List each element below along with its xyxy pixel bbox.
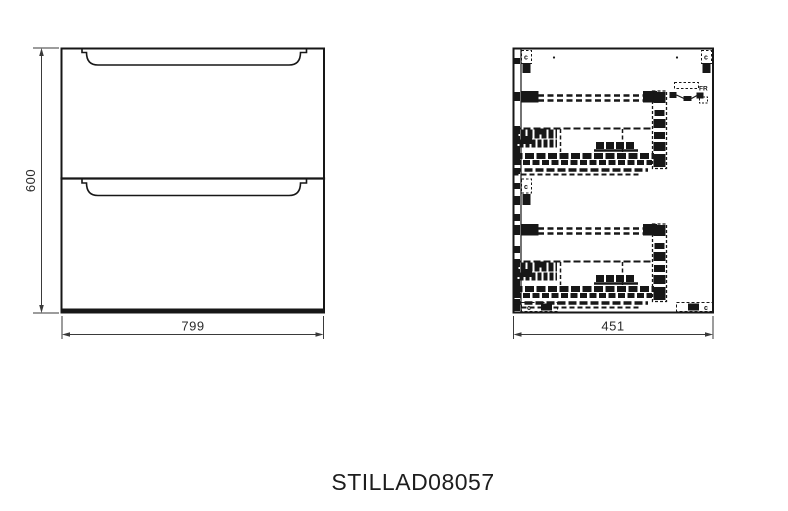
technical-drawing-page: 600 799 c <box>0 0 788 511</box>
depth-dimension-label: 451 <box>601 319 624 334</box>
bracket-mid-left: c <box>522 179 532 205</box>
arrow-down <box>39 305 44 313</box>
bracket-label: c <box>524 55 528 62</box>
arrow-right <box>316 332 324 337</box>
bracket-label: c <box>704 305 708 312</box>
product-code: STILLAD08057 <box>331 469 494 495</box>
corner-bracket-top-left: c <box>522 51 532 74</box>
bracket-label: c <box>524 184 528 191</box>
bracket-label: c <box>704 55 708 62</box>
bottom-drawer-handle-recess <box>82 180 307 196</box>
depth-dimension: 451 <box>514 316 714 339</box>
height-dimension-label: 600 <box>23 169 38 192</box>
arrow-up <box>39 48 44 56</box>
width-dimension: 799 <box>62 316 324 339</box>
screw-mark-right <box>676 56 678 58</box>
arrow-left <box>62 332 70 337</box>
corner-bracket-top-right: c <box>702 51 712 74</box>
hinge-detail: FR <box>670 83 708 104</box>
height-dimension: 600 <box>23 48 59 313</box>
top-drawer-handle-recess <box>82 49 307 66</box>
corner-bracket-bottom-right: c <box>677 303 713 313</box>
screw-mark-left <box>553 56 555 58</box>
drawer-assembly-top <box>514 91 667 175</box>
side-view: c c c c c FR <box>514 49 714 313</box>
width-dimension-label: 799 <box>181 319 204 334</box>
drawing-canvas: 600 799 c <box>0 0 788 511</box>
arrow-right <box>705 332 713 337</box>
hinge-label: FR <box>699 86 708 93</box>
drawer-assembly-bottom <box>514 224 667 308</box>
front-view <box>62 49 325 313</box>
arrow-left <box>514 332 522 337</box>
cabinet-outline <box>62 49 325 313</box>
